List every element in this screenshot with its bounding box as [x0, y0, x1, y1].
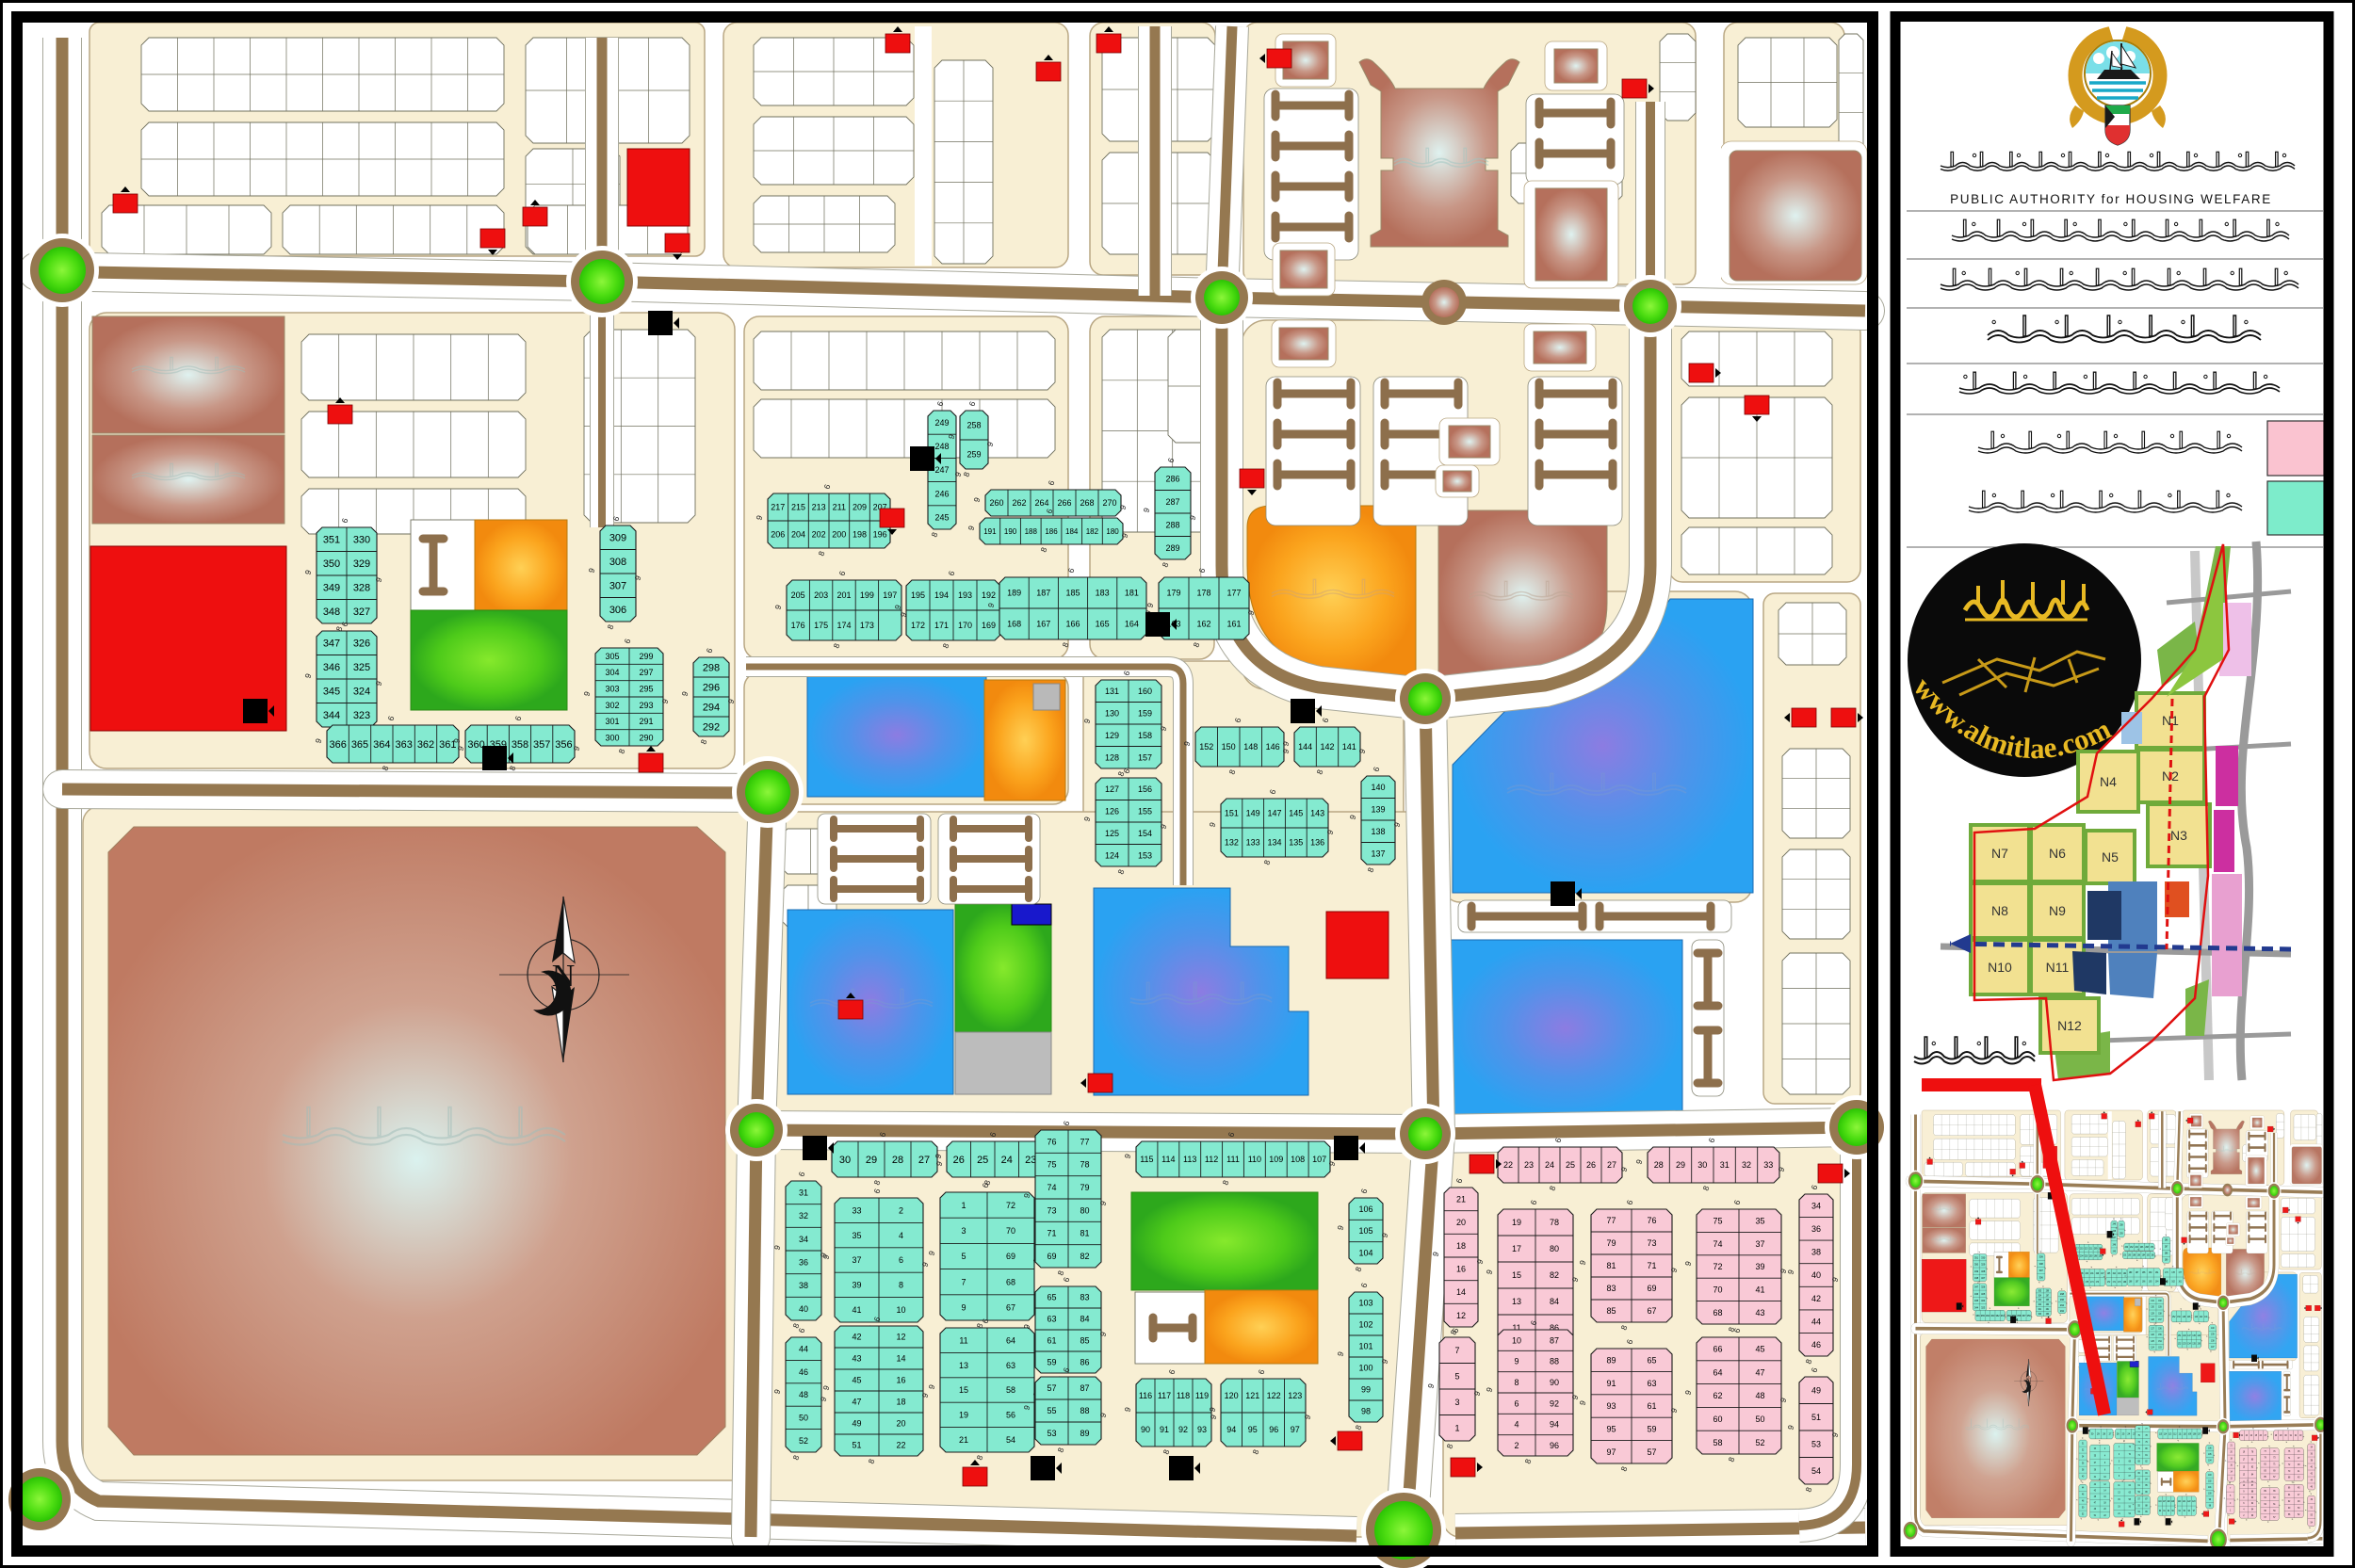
svg-text:78: 78	[1080, 1160, 1089, 1170]
svg-text:19: 19	[959, 1411, 968, 1420]
svg-text:328: 328	[353, 583, 370, 594]
svg-text:349: 349	[323, 583, 340, 594]
svg-text:301: 301	[605, 717, 619, 726]
svg-text:180: 180	[1106, 527, 1119, 536]
svg-text:17: 17	[1512, 1244, 1521, 1253]
svg-text:31: 31	[799, 1188, 808, 1198]
svg-text:32: 32	[1742, 1160, 1751, 1170]
svg-text:88: 88	[1550, 1357, 1559, 1366]
svg-text:295: 295	[639, 685, 653, 694]
svg-text:258: 258	[966, 421, 981, 430]
svg-text:270: 270	[1102, 498, 1116, 508]
svg-text:65: 65	[1047, 1293, 1056, 1302]
svg-text:195: 195	[911, 590, 925, 600]
svg-text:50: 50	[1755, 1414, 1764, 1424]
svg-text:158: 158	[1138, 731, 1152, 740]
svg-text:89: 89	[1606, 1355, 1616, 1365]
svg-text:26: 26	[953, 1155, 965, 1166]
svg-text:169: 169	[982, 621, 996, 630]
svg-text:87: 87	[1550, 1335, 1559, 1345]
svg-text:139: 139	[1371, 805, 1385, 815]
svg-text:58: 58	[1006, 1385, 1015, 1395]
svg-text:50: 50	[799, 1414, 808, 1423]
svg-text:87: 87	[1080, 1383, 1089, 1393]
svg-text:104: 104	[1358, 1249, 1372, 1258]
svg-text:82: 82	[1080, 1252, 1089, 1261]
svg-text:12: 12	[1456, 1311, 1466, 1320]
svg-text:97: 97	[1606, 1447, 1616, 1457]
svg-text:121: 121	[1245, 1391, 1259, 1400]
svg-text:118: 118	[1177, 1391, 1190, 1400]
svg-text:140: 140	[1371, 783, 1385, 792]
svg-text:94: 94	[1226, 1425, 1236, 1434]
svg-text:205: 205	[791, 590, 805, 600]
svg-text:303: 303	[605, 685, 619, 694]
svg-text:249: 249	[934, 418, 949, 428]
svg-text:N3: N3	[2170, 828, 2187, 843]
svg-text:54: 54	[1006, 1435, 1015, 1445]
svg-text:34: 34	[1811, 1202, 1821, 1211]
svg-text:357: 357	[533, 739, 550, 751]
svg-text:24: 24	[1001, 1155, 1013, 1166]
svg-text:203: 203	[814, 590, 828, 600]
svg-text:7: 7	[961, 1277, 966, 1286]
svg-text:91: 91	[1606, 1379, 1616, 1388]
svg-text:182: 182	[1086, 527, 1099, 536]
svg-text:65: 65	[1647, 1355, 1656, 1365]
svg-text:165: 165	[1096, 620, 1110, 629]
svg-text:4: 4	[1514, 1420, 1519, 1430]
svg-text:N: N	[552, 959, 576, 994]
svg-text:123: 123	[1288, 1391, 1302, 1400]
svg-text:35: 35	[1755, 1216, 1764, 1225]
svg-text:67: 67	[1647, 1306, 1656, 1316]
svg-text:22: 22	[1503, 1160, 1513, 1170]
svg-text:47: 47	[852, 1398, 861, 1407]
svg-text:19: 19	[1512, 1218, 1521, 1227]
svg-text:63: 63	[1047, 1315, 1056, 1324]
svg-text:183: 183	[1096, 589, 1110, 598]
svg-text:102: 102	[1358, 1320, 1372, 1330]
svg-text:33: 33	[1763, 1160, 1773, 1170]
svg-text:168: 168	[1007, 620, 1021, 629]
svg-text:81: 81	[1080, 1229, 1089, 1238]
svg-text:20: 20	[1456, 1218, 1466, 1227]
svg-text:78: 78	[1550, 1218, 1559, 1227]
svg-text:129: 129	[1105, 731, 1119, 740]
svg-text:344: 344	[323, 710, 340, 721]
svg-text:15: 15	[1512, 1270, 1521, 1280]
svg-text:287: 287	[1165, 497, 1179, 507]
svg-text:75: 75	[1713, 1216, 1722, 1225]
svg-text:111: 111	[1226, 1155, 1240, 1164]
svg-text:262: 262	[1012, 498, 1026, 508]
svg-text:8: 8	[1514, 1378, 1519, 1387]
svg-text:61: 61	[1047, 1336, 1056, 1346]
svg-text:58: 58	[1713, 1438, 1722, 1447]
svg-text:48: 48	[1755, 1391, 1764, 1400]
svg-text:73: 73	[1047, 1205, 1056, 1215]
svg-text:110: 110	[1248, 1155, 1261, 1164]
svg-text:149: 149	[1246, 809, 1260, 818]
svg-text:350: 350	[323, 558, 340, 570]
svg-text:22: 22	[896, 1441, 905, 1450]
svg-text:9: 9	[1514, 1357, 1519, 1366]
svg-text:137: 137	[1371, 849, 1385, 859]
svg-text:52: 52	[799, 1436, 808, 1446]
svg-text:323: 323	[353, 710, 370, 721]
svg-text:1: 1	[1454, 1424, 1459, 1433]
svg-text:4: 4	[899, 1231, 903, 1240]
svg-text:148: 148	[1243, 742, 1258, 752]
svg-text:136: 136	[1310, 838, 1324, 848]
svg-text:64: 64	[1713, 1367, 1722, 1377]
svg-text:96: 96	[1550, 1441, 1559, 1450]
svg-text:346: 346	[323, 662, 340, 673]
svg-text:80: 80	[1550, 1244, 1559, 1253]
svg-text:36: 36	[1811, 1224, 1821, 1234]
svg-text:362: 362	[417, 739, 434, 751]
svg-text:100: 100	[1358, 1364, 1372, 1373]
svg-text:94: 94	[1550, 1420, 1559, 1430]
svg-text:199: 199	[860, 590, 874, 600]
svg-text:160: 160	[1138, 687, 1152, 696]
svg-text:119: 119	[1195, 1391, 1209, 1400]
svg-text:59: 59	[1047, 1358, 1056, 1367]
svg-text:194: 194	[934, 590, 949, 600]
svg-text:26: 26	[1586, 1160, 1596, 1170]
svg-text:45: 45	[1755, 1345, 1764, 1354]
svg-text:345: 345	[323, 687, 340, 698]
svg-text:74: 74	[1047, 1183, 1056, 1192]
svg-text:181: 181	[1125, 589, 1139, 598]
svg-text:134: 134	[1267, 838, 1281, 848]
svg-text:29: 29	[1676, 1160, 1685, 1170]
svg-text:215: 215	[791, 503, 805, 512]
svg-text:43: 43	[852, 1354, 861, 1364]
svg-text:358: 358	[512, 739, 528, 751]
svg-text:24: 24	[1545, 1160, 1554, 1170]
svg-text:115: 115	[1140, 1155, 1153, 1164]
svg-text:53: 53	[1047, 1429, 1056, 1438]
svg-text:188: 188	[1025, 527, 1038, 536]
svg-text:16: 16	[896, 1376, 905, 1385]
svg-text:365: 365	[351, 739, 368, 751]
svg-text:39: 39	[852, 1281, 861, 1290]
svg-text:N4: N4	[2100, 774, 2117, 789]
svg-text:44: 44	[799, 1344, 808, 1353]
svg-text:329: 329	[353, 558, 370, 570]
svg-text:291: 291	[639, 717, 653, 726]
svg-text:31: 31	[1720, 1160, 1730, 1170]
svg-text:N9: N9	[2049, 903, 2066, 918]
svg-text:192: 192	[982, 590, 996, 600]
svg-text:74: 74	[1713, 1239, 1722, 1249]
svg-text:45: 45	[852, 1376, 861, 1385]
svg-text:62: 62	[1713, 1391, 1722, 1400]
svg-text:98: 98	[1361, 1407, 1371, 1416]
svg-text:25: 25	[977, 1155, 988, 1166]
svg-text:3: 3	[1454, 1398, 1459, 1407]
svg-text:59: 59	[1647, 1425, 1656, 1434]
svg-text:259: 259	[966, 450, 981, 460]
svg-text:260: 260	[989, 498, 1003, 508]
svg-text:N8: N8	[1991, 903, 2008, 918]
svg-text:68: 68	[1006, 1277, 1015, 1286]
svg-text:7: 7	[1454, 1346, 1459, 1355]
svg-text:37: 37	[852, 1255, 861, 1265]
svg-text:10: 10	[1512, 1335, 1521, 1345]
svg-text:153: 153	[1138, 851, 1152, 861]
svg-text:190: 190	[1004, 527, 1017, 536]
svg-text:69: 69	[1647, 1284, 1656, 1293]
svg-text:9: 9	[961, 1303, 966, 1313]
svg-text:161: 161	[1226, 620, 1241, 629]
svg-text:351: 351	[323, 535, 340, 546]
svg-text:89: 89	[1080, 1429, 1089, 1438]
svg-text:95: 95	[1248, 1425, 1258, 1434]
svg-text:40: 40	[799, 1304, 808, 1314]
svg-text:70: 70	[1006, 1226, 1015, 1236]
svg-text:172: 172	[911, 621, 925, 630]
svg-text:92: 92	[1178, 1425, 1188, 1434]
svg-text:49: 49	[1811, 1386, 1821, 1396]
svg-text:63: 63	[1647, 1379, 1656, 1388]
svg-text:21: 21	[959, 1435, 968, 1445]
svg-text:113: 113	[1183, 1155, 1196, 1164]
svg-text:84: 84	[1550, 1297, 1559, 1306]
svg-text:130: 130	[1105, 709, 1119, 719]
svg-text:114: 114	[1161, 1155, 1175, 1164]
svg-text:348: 348	[323, 606, 340, 618]
svg-text:25: 25	[1566, 1160, 1575, 1170]
svg-text:77: 77	[1080, 1137, 1089, 1146]
svg-text:300: 300	[605, 734, 619, 743]
svg-text:213: 213	[812, 503, 826, 512]
svg-text:245: 245	[934, 513, 949, 523]
svg-text:51: 51	[852, 1441, 861, 1450]
svg-text:44: 44	[1811, 1317, 1821, 1326]
svg-text:36: 36	[799, 1258, 808, 1268]
svg-text:177: 177	[1226, 589, 1241, 598]
svg-text:176: 176	[791, 621, 805, 630]
svg-text:120: 120	[1225, 1391, 1239, 1400]
svg-text:79: 79	[1606, 1238, 1616, 1248]
svg-text:48: 48	[799, 1390, 808, 1399]
svg-text:90: 90	[1141, 1425, 1150, 1434]
svg-text:326: 326	[353, 639, 370, 650]
svg-text:23: 23	[1524, 1160, 1534, 1170]
svg-text:143: 143	[1310, 809, 1324, 818]
svg-text:N6: N6	[2049, 846, 2066, 861]
svg-text:71: 71	[1647, 1261, 1656, 1270]
svg-text:85: 85	[1606, 1306, 1616, 1316]
svg-text:117: 117	[1158, 1391, 1171, 1400]
svg-text:174: 174	[836, 621, 851, 630]
svg-text:363: 363	[396, 739, 413, 751]
svg-text:33: 33	[852, 1205, 861, 1215]
svg-text:15: 15	[959, 1385, 968, 1395]
svg-text:107: 107	[1312, 1155, 1326, 1164]
svg-text:40: 40	[1811, 1270, 1821, 1280]
svg-text:307: 307	[609, 581, 626, 592]
svg-text:72: 72	[1006, 1201, 1015, 1210]
svg-text:306: 306	[609, 605, 626, 616]
svg-text:293: 293	[639, 701, 653, 710]
svg-text:32: 32	[799, 1211, 808, 1220]
svg-text:80: 80	[1080, 1205, 1089, 1215]
svg-text:41: 41	[852, 1305, 861, 1315]
svg-text:167: 167	[1036, 620, 1050, 629]
svg-text:292: 292	[703, 722, 720, 734]
svg-text:12: 12	[896, 1333, 905, 1342]
svg-text:356: 356	[555, 739, 572, 751]
svg-text:327: 327	[353, 606, 370, 618]
svg-text:16: 16	[1456, 1265, 1466, 1274]
svg-text:41: 41	[1755, 1285, 1764, 1295]
svg-text:197: 197	[883, 590, 897, 600]
svg-text:N12: N12	[2057, 1018, 2082, 1033]
svg-text:187: 187	[1036, 589, 1050, 598]
svg-text:14: 14	[896, 1354, 905, 1364]
svg-text:122: 122	[1267, 1391, 1281, 1400]
svg-text:145: 145	[1289, 809, 1303, 818]
svg-text:95: 95	[1606, 1425, 1616, 1434]
svg-text:53: 53	[1811, 1440, 1821, 1449]
svg-text:27: 27	[1607, 1160, 1616, 1170]
svg-text:66: 66	[1713, 1345, 1722, 1354]
svg-text:30: 30	[1697, 1160, 1707, 1170]
svg-text:79: 79	[1080, 1183, 1089, 1192]
svg-text:125: 125	[1105, 829, 1119, 838]
svg-text:N7: N7	[1991, 846, 2008, 861]
svg-text:159: 159	[1138, 709, 1152, 719]
svg-text:141: 141	[1342, 742, 1356, 752]
svg-text:288: 288	[1165, 521, 1179, 530]
svg-text:247: 247	[934, 465, 949, 475]
svg-text:N5: N5	[2102, 849, 2119, 865]
svg-text:146: 146	[1266, 742, 1280, 752]
svg-text:47: 47	[1755, 1367, 1764, 1377]
svg-text:N10: N10	[1988, 960, 2012, 975]
svg-text:96: 96	[1269, 1425, 1278, 1434]
svg-text:91: 91	[1160, 1425, 1169, 1434]
svg-text:324: 324	[353, 687, 370, 698]
svg-text:76: 76	[1647, 1216, 1656, 1225]
svg-text:13: 13	[959, 1361, 968, 1370]
svg-text:202: 202	[812, 530, 826, 540]
svg-text:266: 266	[1057, 498, 1071, 508]
svg-text:347: 347	[323, 639, 340, 650]
svg-text:106: 106	[1358, 1204, 1372, 1214]
svg-text:157: 157	[1138, 753, 1152, 763]
svg-text:68: 68	[1713, 1308, 1722, 1317]
svg-text:99: 99	[1361, 1385, 1371, 1395]
svg-text:184: 184	[1065, 527, 1079, 536]
svg-text:84: 84	[1080, 1315, 1089, 1324]
svg-text:108: 108	[1291, 1155, 1305, 1164]
svg-text:42: 42	[852, 1333, 861, 1342]
svg-text:364: 364	[373, 739, 390, 751]
svg-text:76: 76	[1047, 1137, 1056, 1146]
svg-text:49: 49	[852, 1419, 861, 1429]
svg-text:248: 248	[934, 442, 949, 451]
svg-text:13: 13	[1512, 1297, 1521, 1306]
svg-text:56: 56	[1006, 1411, 1015, 1420]
svg-text:198: 198	[853, 530, 867, 540]
svg-text:305: 305	[605, 652, 619, 661]
svg-text:60: 60	[1713, 1414, 1722, 1424]
svg-text:186: 186	[1045, 527, 1058, 536]
svg-text:27: 27	[918, 1155, 930, 1166]
svg-text:196: 196	[873, 530, 887, 540]
svg-text:83: 83	[1080, 1293, 1089, 1302]
svg-text:28: 28	[892, 1155, 903, 1166]
svg-text:124: 124	[1105, 851, 1119, 861]
svg-text:3: 3	[961, 1226, 966, 1236]
svg-text:69: 69	[1047, 1252, 1056, 1261]
svg-text:268: 268	[1080, 498, 1094, 508]
svg-text:189: 189	[1007, 589, 1021, 598]
svg-text:152: 152	[1199, 742, 1213, 752]
svg-text:6: 6	[899, 1255, 903, 1265]
svg-text:21: 21	[1456, 1195, 1466, 1204]
svg-text:309: 309	[609, 533, 626, 544]
svg-text:38: 38	[799, 1281, 808, 1290]
svg-text:156: 156	[1138, 784, 1152, 794]
svg-text:52: 52	[1755, 1438, 1764, 1447]
svg-text:20: 20	[896, 1419, 905, 1429]
svg-text:128: 128	[1105, 753, 1119, 763]
svg-text:81: 81	[1606, 1261, 1616, 1270]
svg-text:144: 144	[1298, 742, 1312, 752]
svg-text:69: 69	[1006, 1252, 1015, 1261]
svg-text:298: 298	[703, 663, 720, 674]
svg-text:14: 14	[1456, 1287, 1466, 1297]
svg-text:8: 8	[899, 1281, 903, 1290]
svg-text:39: 39	[1755, 1262, 1764, 1271]
svg-text:193: 193	[958, 590, 972, 600]
svg-text:51: 51	[1811, 1413, 1821, 1422]
svg-text:170: 170	[958, 621, 972, 630]
svg-text:126: 126	[1105, 807, 1119, 816]
svg-text:PUBLIC AUTHORITY for HOUSIN: PUBLIC AUTHORITY for HOUSING WELFARE	[1950, 192, 2272, 206]
svg-text:34: 34	[799, 1235, 808, 1244]
svg-text:72: 72	[1713, 1262, 1722, 1271]
svg-text:290: 290	[639, 734, 653, 743]
svg-text:63: 63	[1006, 1361, 1015, 1370]
svg-text:46: 46	[1811, 1340, 1821, 1350]
svg-text:206: 206	[771, 530, 785, 540]
svg-text:286: 286	[1165, 475, 1179, 484]
svg-text:147: 147	[1267, 809, 1281, 818]
svg-text:5: 5	[961, 1252, 966, 1261]
svg-text:302: 302	[605, 701, 619, 710]
svg-text:42: 42	[1811, 1294, 1821, 1303]
svg-text:179: 179	[1166, 589, 1180, 598]
svg-text:88: 88	[1080, 1406, 1089, 1415]
svg-text:150: 150	[1222, 742, 1236, 752]
svg-text:264: 264	[1034, 498, 1048, 508]
svg-text:54: 54	[1811, 1466, 1821, 1476]
svg-text:75: 75	[1047, 1160, 1056, 1170]
svg-text:154: 154	[1138, 829, 1152, 838]
svg-text:86: 86	[1080, 1358, 1089, 1367]
svg-text:185: 185	[1065, 589, 1080, 598]
svg-text:N11: N11	[2046, 960, 2070, 975]
svg-text:217: 217	[771, 503, 785, 512]
svg-text:35: 35	[852, 1231, 861, 1240]
